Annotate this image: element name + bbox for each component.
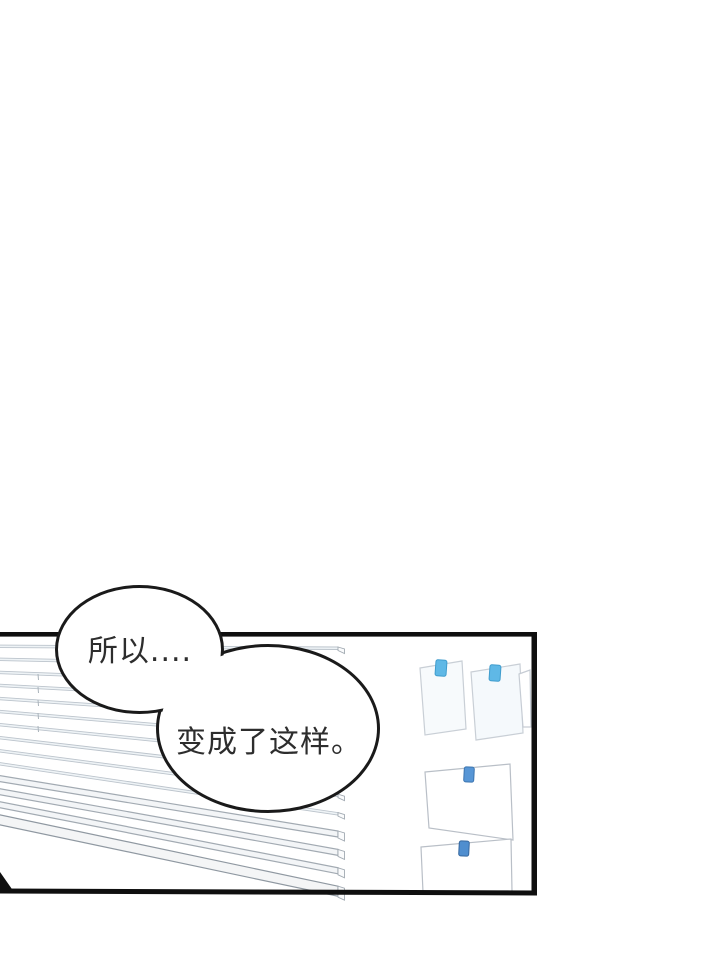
blind-slat-endcap: [338, 813, 345, 820]
blind-cord: [38, 674, 39, 680]
blind-cord: [38, 713, 39, 719]
blind-cord: [38, 726, 39, 732]
blind-cord: [38, 687, 39, 693]
blind-slat-endcap: [338, 647, 345, 654]
pinned-paper: [471, 664, 523, 740]
paper-tape: [489, 665, 501, 682]
blind-slat-endcap: [338, 831, 345, 841]
pinned-paper: [420, 660, 466, 735]
blind-slat-endcap: [338, 794, 345, 801]
pinned-paper: [421, 839, 512, 892]
comic-page: 所以.... 变成了这样。: [0, 0, 720, 963]
panel-border-corner-wedge: [0, 872, 14, 892]
paper-tape: [435, 660, 447, 677]
blind-slat: [0, 801, 338, 874]
blind-cord: [38, 700, 39, 706]
paper-tape: [459, 841, 470, 857]
panel-border-right: [532, 632, 538, 895]
blind-slat-endcap: [338, 868, 345, 878]
paper-tape: [464, 767, 475, 783]
speech-bubble-2-text: 变成了这样。: [157, 723, 381, 763]
speech-bubble-1-text: 所以....: [56, 633, 224, 671]
pinned-paper: [425, 764, 513, 840]
blind-slat-endcap: [338, 849, 345, 859]
